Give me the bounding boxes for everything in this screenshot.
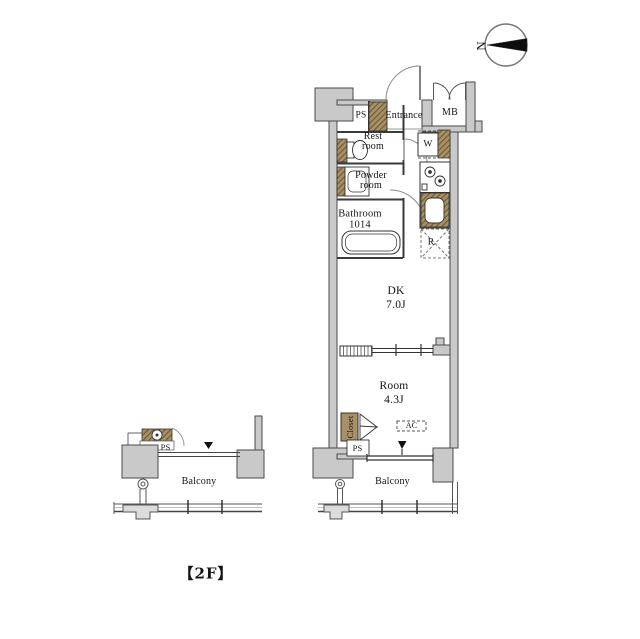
label-room-line1: Room xyxy=(380,380,409,394)
adjacent-balcony xyxy=(114,416,264,519)
fridge-space xyxy=(421,229,449,258)
label-meter-box: MB xyxy=(442,108,458,118)
label-dk-line2: 7.0J xyxy=(386,299,406,313)
balcony-window xyxy=(367,454,433,462)
compass-north-label: N xyxy=(475,41,488,51)
floor-plan-drawing xyxy=(0,0,640,639)
mb-doors-icon xyxy=(434,83,466,100)
label-rest-room-line2: room xyxy=(362,142,384,152)
kitchen-counter xyxy=(420,162,450,228)
label-powder-room-line2: room xyxy=(355,181,387,191)
closet-doors-icon xyxy=(360,414,377,440)
drain-icon xyxy=(324,480,349,520)
entry-marker-icon xyxy=(398,441,407,455)
floor-label: 【2F】 xyxy=(178,567,233,582)
label-room-line2: 4.3J xyxy=(380,394,409,408)
label-rest-room: Rest room xyxy=(362,132,384,152)
label-adjacent-ps: PS xyxy=(161,443,171,452)
drain-icon xyxy=(123,479,158,519)
label-balcony: Balcony xyxy=(375,477,410,487)
label-adjacent-balcony: Balcony xyxy=(182,477,217,487)
label-ac: AC xyxy=(406,422,418,430)
label-room: Room 4.3J xyxy=(380,380,409,408)
label-entrance: Entrance xyxy=(385,111,422,121)
label-ps-bottom: PS xyxy=(353,444,363,453)
kitchen-sink-icon xyxy=(421,193,449,227)
north-compass-icon xyxy=(485,24,527,66)
label-bathroom-line2: 1014 xyxy=(338,220,382,231)
label-washer: W xyxy=(423,140,432,150)
entry-marker-icon xyxy=(204,442,213,449)
label-ps-top: PS xyxy=(356,111,367,121)
label-bathroom: Bathroom 1014 xyxy=(338,210,382,231)
shoe-box xyxy=(369,102,387,131)
label-powder-room: Powder room xyxy=(355,171,387,191)
label-dk-line1: DK xyxy=(386,285,406,299)
label-closet: Closet xyxy=(345,416,354,439)
sliding-door xyxy=(340,344,433,356)
bathtub-icon xyxy=(342,231,400,254)
label-refrigerator: R xyxy=(428,238,435,248)
label-bathroom-line1: Bathroom xyxy=(338,210,382,221)
floor-plan: PS Entrance MB Rest room W Powder room B… xyxy=(0,0,640,639)
label-dk: DK 7.0J xyxy=(386,285,406,313)
